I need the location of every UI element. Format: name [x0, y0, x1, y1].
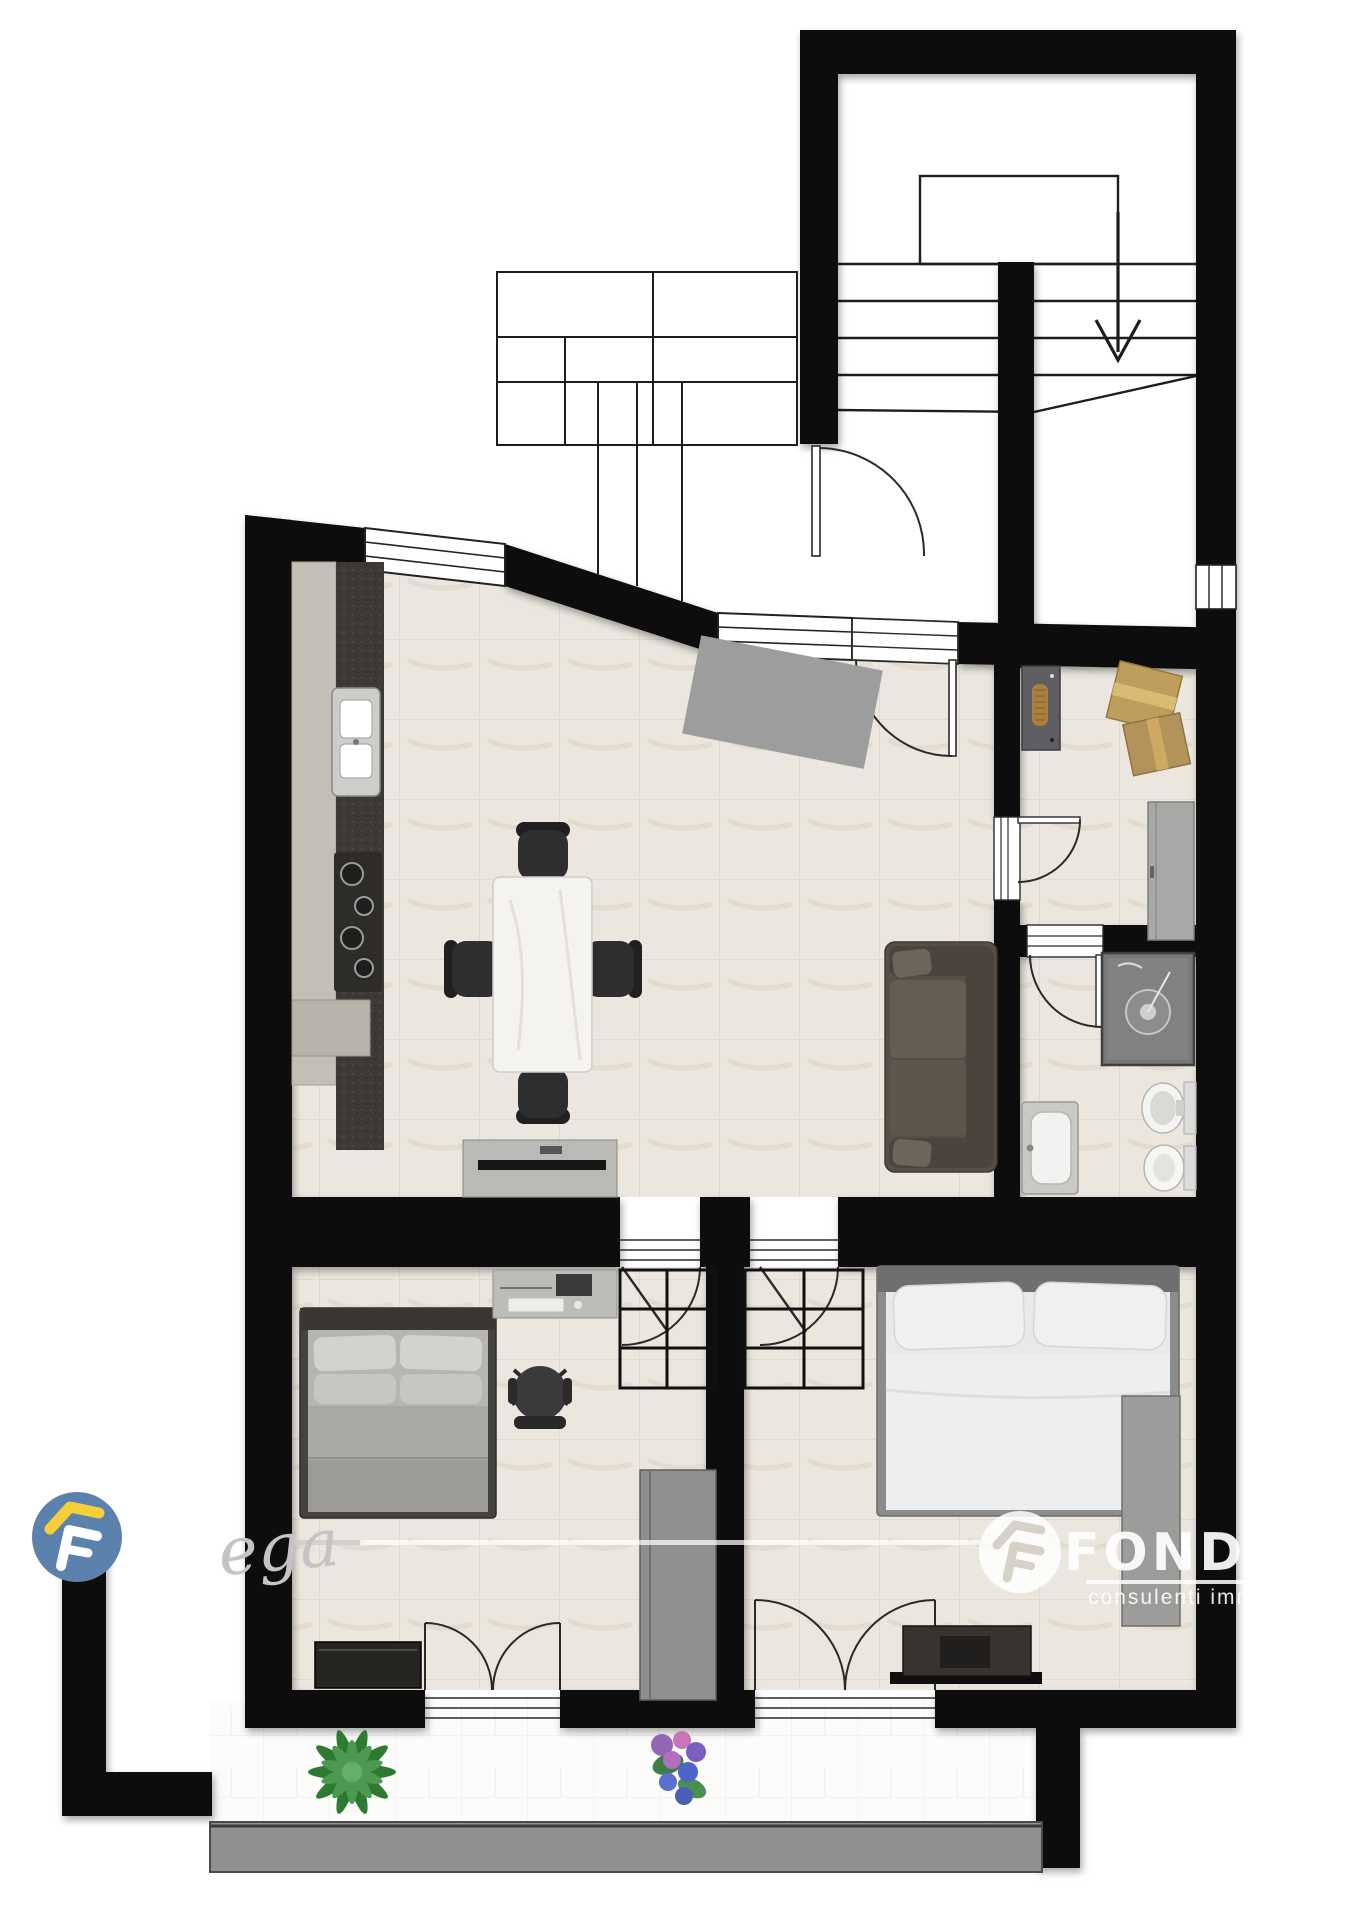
desk-with-computer: [493, 1270, 617, 1318]
tv-sideboard: [463, 1140, 617, 1197]
script-watermark: ega: [215, 1504, 342, 1591]
hall-cabinet: [1148, 802, 1194, 940]
wall-mid-band-c: [838, 1197, 1236, 1267]
bed-gray: [300, 1308, 496, 1518]
wall-hall-divider-lower: [994, 900, 1020, 1197]
office-chair: [508, 1366, 572, 1429]
sofa: [885, 942, 997, 1172]
dining-chair-south: [516, 1068, 570, 1124]
stair-right-window: [1196, 565, 1236, 609]
brand-logo-text: FONDOCAS: [1064, 1523, 1358, 1583]
stairwell-door: [812, 446, 924, 556]
toilet: [1142, 1082, 1196, 1134]
wall-hall-divider-upper: [994, 660, 1020, 817]
washbasin: [1022, 1102, 1078, 1194]
kitchen-appliance: [292, 1000, 370, 1056]
parapet: [210, 1822, 1042, 1872]
floor-plan-svg: ega FONDOCAS consulenti imm: [0, 0, 1358, 1920]
fondocasa-logo-icon: [979, 1511, 1061, 1593]
dining-chair-north: [516, 822, 570, 880]
stairwell: [497, 176, 1196, 601]
wall-stair-newel: [998, 262, 1034, 668]
brand-tagline: consulenti imm: [1088, 1586, 1256, 1609]
stair-treads-right: [1034, 264, 1196, 412]
bidet: [1144, 1145, 1196, 1191]
wardrobe-left-bedroom: [640, 1470, 716, 1700]
wall-right-outer: [1196, 30, 1236, 1700]
brand-underline: [1086, 1580, 1270, 1584]
adjacent-unit-outline: [497, 272, 797, 601]
dining-table: [493, 877, 592, 1072]
wall-neighbor-foot: [62, 1772, 212, 1816]
wall-bottom-a: [292, 1690, 425, 1728]
wall-stair-left: [800, 30, 838, 444]
wall-bath-top-a: [1018, 925, 1027, 957]
stair-landing-outline: [920, 176, 1118, 264]
watermark-line-white: [360, 1540, 980, 1545]
cooktop: [334, 852, 382, 992]
dresser-left-bedroom: [315, 1642, 421, 1688]
dresser-right-bedroom: [890, 1626, 1042, 1684]
wall-mid-band-a: [292, 1197, 620, 1267]
kitchen: [292, 562, 384, 1150]
electrical-panel: [1022, 666, 1060, 750]
floor-plan-page: ega FONDOCAS consulenti imm: [0, 0, 1358, 1920]
kitchen-sink: [332, 688, 380, 796]
shower: [1102, 953, 1194, 1065]
wall-bottom-c: [935, 1690, 1236, 1728]
wall-mid-band-b: [700, 1197, 750, 1267]
wall-stair-top: [800, 30, 1236, 74]
agency-circle-logo-icon: [32, 1492, 122, 1582]
